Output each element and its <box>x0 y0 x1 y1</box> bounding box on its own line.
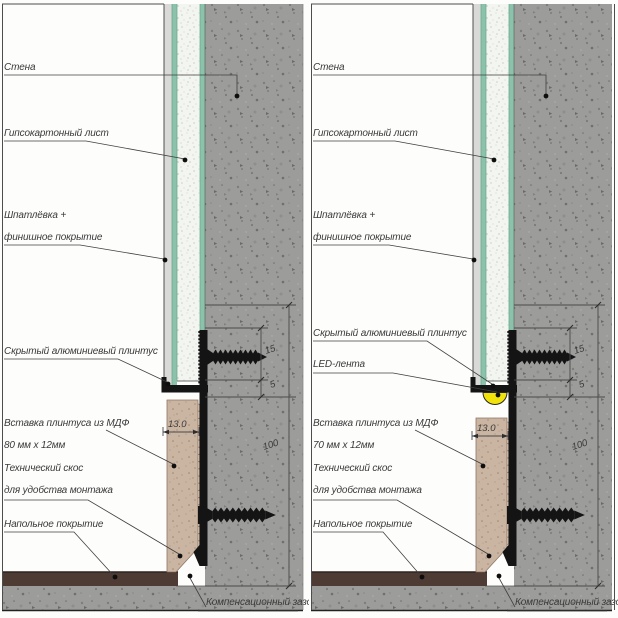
label-bevel-2: для удобства монтажа <box>4 484 113 496</box>
label-finish-1: Шпатлёвка + <box>313 210 375 221</box>
drywall-facing-front <box>172 4 177 385</box>
label-insert-1: Вставка плинтуса из МДФ <box>313 418 438 429</box>
drywall-core <box>177 4 200 381</box>
label-insert-2: 80 мм х 12мм <box>4 440 65 451</box>
label-plinth: Скрытый алюминиевый плинтус <box>4 346 158 357</box>
right-detail-panel: 15 5 100 13.0 Стена Гипсокартонный лист … <box>309 0 618 618</box>
label-finish-2: финишное покрытие <box>313 231 412 243</box>
left-detail-panel: 15 5 100 13.0 Стена Гипсокартонный лист … <box>0 0 309 618</box>
drywall-facing-front <box>481 4 486 385</box>
drywall-facing-back <box>509 4 514 331</box>
label-floor: Напольное покрытие <box>313 519 413 530</box>
label-insert-2: 70 мм х 12мм <box>313 440 374 451</box>
putty-finish-layer <box>473 4 481 385</box>
label-insert-1: Вставка плинтуса из МДФ <box>4 418 129 429</box>
label-gap: Компенсационный зазор <box>515 597 618 608</box>
dim-insert-thickness: 13.0 <box>477 423 496 434</box>
drywall-facing-back <box>200 4 205 331</box>
putty-finish-layer <box>164 4 172 385</box>
label-finish-2: финишное покрытие <box>4 231 103 243</box>
drywall-core <box>486 4 509 381</box>
label-bevel-1: Технический скос <box>313 463 392 474</box>
floor-covering <box>311 572 487 586</box>
label-wall: Стена <box>4 62 36 73</box>
dim-insert-thickness: 13.0 <box>168 419 187 430</box>
label-wall: Стена <box>313 62 345 73</box>
label-bevel-2: для удобства монтажа <box>313 484 422 496</box>
detail-drawing-sheet: 15 5 100 13.0 Стена Гипсокартонный лист … <box>0 0 618 618</box>
aluminum-profile-back <box>509 386 517 566</box>
floor-covering <box>2 572 178 586</box>
label-drywall: Гипсокартонный лист <box>313 128 418 139</box>
led-strip <box>483 393 507 405</box>
label-floor: Напольное покрытие <box>4 519 104 530</box>
label-drywall: Гипсокартонный лист <box>4 128 109 139</box>
aluminum-profile-back <box>200 386 208 566</box>
label-plinth: Скрытый алюминиевый плинтус <box>313 328 467 339</box>
mdf-insert <box>476 418 507 572</box>
label-bevel-1: Технический скос <box>4 463 83 474</box>
label-gap: Компенсационный зазор <box>206 597 309 608</box>
label-finish-1: Шпатлёвка + <box>4 210 66 221</box>
label-led: LED-лента <box>313 359 366 370</box>
